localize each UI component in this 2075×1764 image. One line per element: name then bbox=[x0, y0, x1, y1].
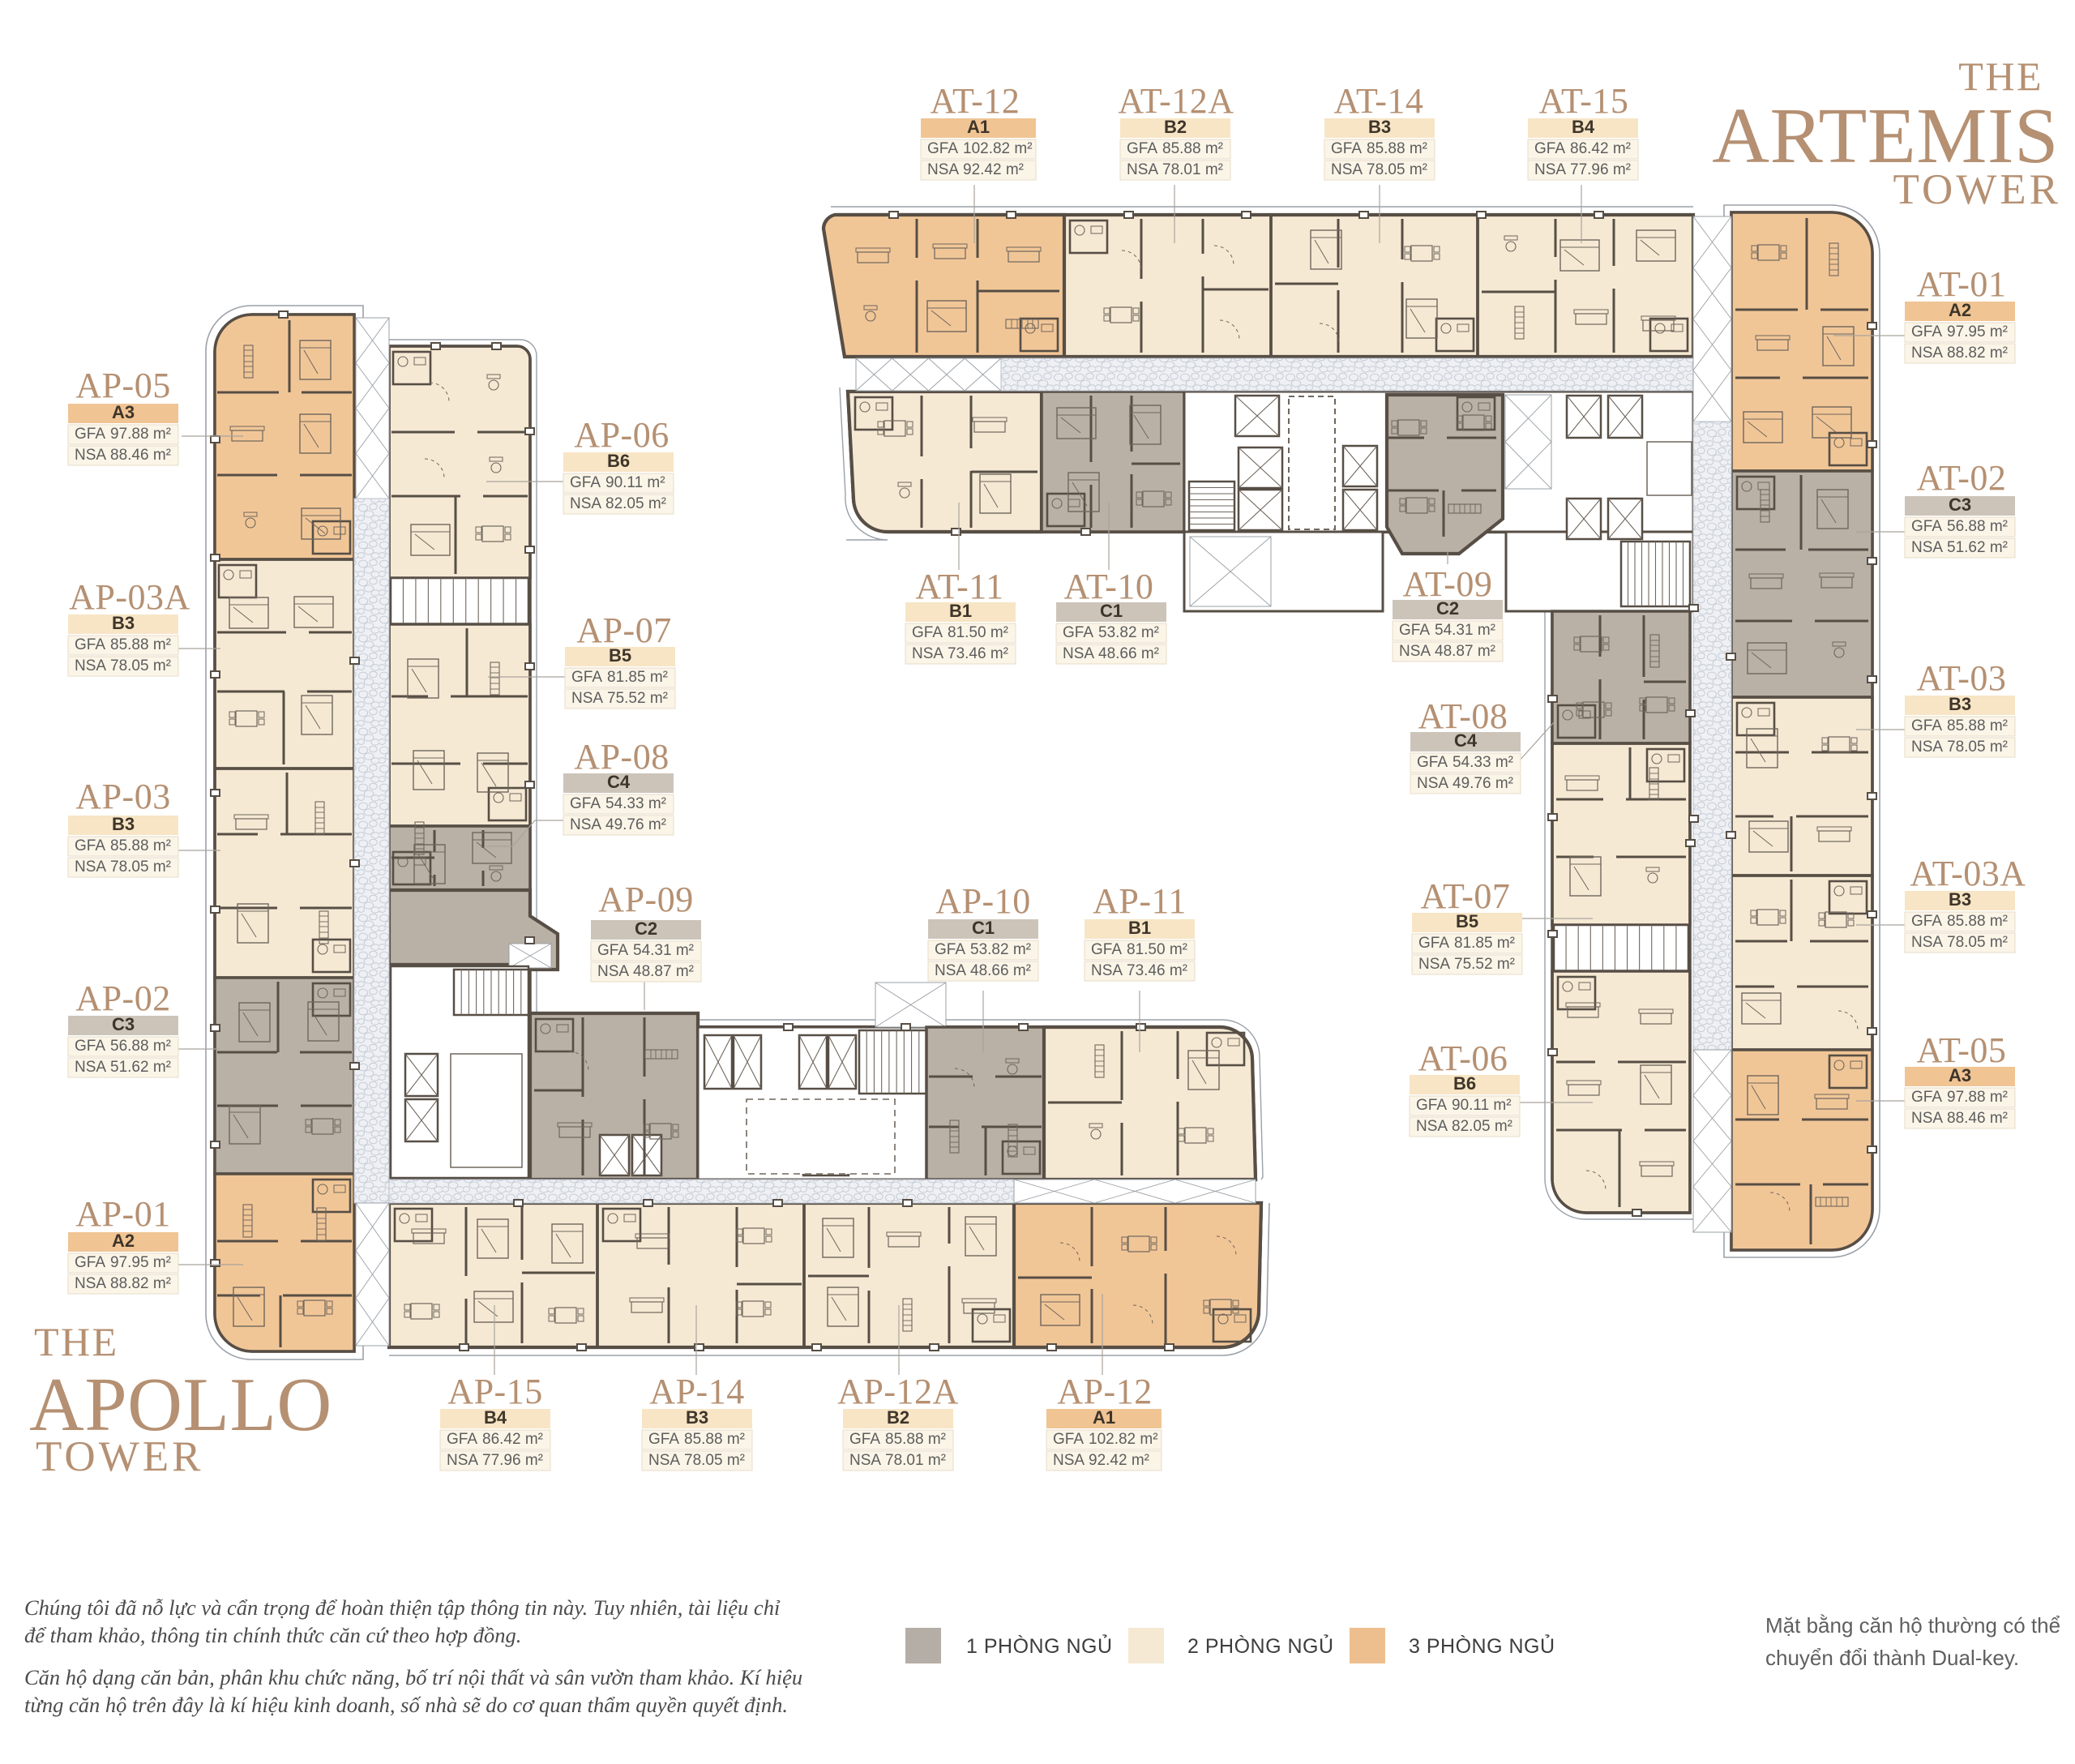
svg-text:GFA: GFA bbox=[570, 474, 601, 491]
svg-text:AT-14: AT-14 bbox=[1334, 81, 1424, 121]
svg-text:AT-15: AT-15 bbox=[1539, 81, 1629, 121]
svg-text:NSA: NSA bbox=[1534, 161, 1566, 178]
svg-text:75.52 m²: 75.52 m² bbox=[1454, 956, 1515, 973]
svg-text:NSA: NSA bbox=[1416, 1118, 1448, 1135]
svg-text:B3: B3 bbox=[1368, 117, 1391, 137]
svg-text:GFA: GFA bbox=[1534, 140, 1565, 157]
svg-text:85.88 m²: 85.88 m² bbox=[885, 1431, 946, 1448]
svg-text:54.31 m²: 54.31 m² bbox=[1435, 622, 1495, 639]
svg-text:GFA: GFA bbox=[447, 1431, 477, 1448]
svg-text:A2: A2 bbox=[112, 1231, 135, 1251]
svg-text:B3: B3 bbox=[112, 613, 135, 633]
svg-text:90.11 m²: 90.11 m² bbox=[605, 474, 665, 491]
svg-text:GFA: GFA bbox=[1417, 754, 1448, 771]
svg-text:B3: B3 bbox=[686, 1407, 708, 1428]
svg-text:GFA: GFA bbox=[1127, 140, 1157, 157]
svg-text:C4: C4 bbox=[607, 772, 631, 792]
svg-text:88.82 m²: 88.82 m² bbox=[1947, 345, 2008, 362]
svg-text:B6: B6 bbox=[607, 451, 630, 471]
svg-text:86.42 m²: 86.42 m² bbox=[1570, 140, 1631, 157]
svg-text:A1: A1 bbox=[1093, 1407, 1115, 1428]
svg-text:NSA: NSA bbox=[1911, 539, 1943, 556]
svg-text:NSA: NSA bbox=[75, 1275, 106, 1292]
svg-text:97.88 m²: 97.88 m² bbox=[110, 426, 171, 443]
svg-text:AT-01: AT-01 bbox=[1917, 264, 2007, 304]
svg-text:AP-08: AP-08 bbox=[574, 737, 669, 777]
svg-text:AP-06: AP-06 bbox=[574, 415, 669, 455]
svg-text:GFA: GFA bbox=[75, 636, 105, 653]
svg-text:88.82 m²: 88.82 m² bbox=[110, 1275, 171, 1292]
svg-text:GFA: GFA bbox=[1063, 624, 1093, 641]
svg-text:AP-12: AP-12 bbox=[1057, 1372, 1152, 1411]
svg-text:AP-15: AP-15 bbox=[447, 1372, 542, 1411]
svg-text:NSA: NSA bbox=[1418, 956, 1450, 973]
svg-text:GFA: GFA bbox=[597, 942, 628, 959]
svg-text:B4: B4 bbox=[484, 1407, 507, 1428]
svg-text:B3: B3 bbox=[1949, 889, 1971, 910]
svg-text:GFA: GFA bbox=[1053, 1431, 1084, 1448]
svg-text:từng căn hộ trên đây là kí hiệ: từng căn hộ trên đây là kí hiệu kinh doa… bbox=[24, 1693, 788, 1717]
svg-text:AP-12A: AP-12A bbox=[837, 1372, 959, 1411]
svg-text:81.50 m²: 81.50 m² bbox=[948, 624, 1008, 641]
svg-text:Chúng tôi đã nỗ lực và cẩn trọ: Chúng tôi đã nỗ lực và cẩn trọng để hoàn… bbox=[24, 1595, 781, 1620]
svg-text:3 PHÒNG NGỦ: 3 PHÒNG NGỦ bbox=[1409, 1633, 1555, 1658]
svg-text:AP-03: AP-03 bbox=[75, 777, 170, 816]
svg-text:AT-05: AT-05 bbox=[1917, 1030, 2007, 1070]
svg-text:NSA: NSA bbox=[597, 963, 629, 980]
svg-text:B6: B6 bbox=[1453, 1073, 1476, 1094]
svg-text:48.87 m²: 48.87 m² bbox=[1435, 643, 1495, 660]
svg-text:NSA: NSA bbox=[1911, 345, 1943, 362]
svg-text:NSA: NSA bbox=[1911, 739, 1943, 756]
svg-text:B1: B1 bbox=[1128, 918, 1151, 938]
svg-text:C3: C3 bbox=[112, 1014, 135, 1034]
svg-text:AT-12A: AT-12A bbox=[1118, 81, 1234, 121]
svg-text:A2: A2 bbox=[1949, 300, 1971, 320]
svg-text:78.05 m²: 78.05 m² bbox=[1947, 739, 2008, 756]
svg-text:NSA: NSA bbox=[1331, 161, 1363, 178]
svg-text:NSA: NSA bbox=[75, 1059, 106, 1076]
svg-text:GFA: GFA bbox=[1091, 941, 1122, 958]
svg-text:C4: C4 bbox=[1454, 730, 1478, 751]
svg-text:TOWER: TOWER bbox=[1893, 166, 2061, 213]
svg-text:85.88 m²: 85.88 m² bbox=[110, 636, 171, 653]
svg-text:A3: A3 bbox=[1949, 1065, 1971, 1085]
svg-text:81.50 m²: 81.50 m² bbox=[1127, 941, 1187, 958]
svg-text:NSA: NSA bbox=[935, 962, 966, 979]
svg-text:B1: B1 bbox=[949, 601, 972, 621]
svg-text:GFA: GFA bbox=[648, 1431, 679, 1448]
svg-text:B2: B2 bbox=[1164, 117, 1187, 137]
svg-text:B5: B5 bbox=[609, 645, 631, 666]
svg-text:AP-02: AP-02 bbox=[75, 978, 170, 1018]
svg-text:AP-03A: AP-03A bbox=[69, 577, 190, 617]
svg-text:85.88 m²: 85.88 m² bbox=[1947, 913, 2008, 930]
svg-text:THE: THE bbox=[34, 1319, 119, 1364]
svg-text:AT-12: AT-12 bbox=[931, 81, 1020, 121]
svg-text:Căn hộ dạng căn bản, phân khu: Căn hộ dạng căn bản, phân khu chức năng,… bbox=[24, 1665, 802, 1689]
svg-text:AT-03A: AT-03A bbox=[1910, 854, 2026, 893]
svg-text:NSA: NSA bbox=[1911, 934, 1943, 951]
svg-text:GFA: GFA bbox=[1418, 935, 1449, 952]
svg-text:TOWER: TOWER bbox=[36, 1433, 203, 1480]
svg-text:81.85 m²: 81.85 m² bbox=[1454, 935, 1515, 952]
svg-text:AT-07: AT-07 bbox=[1421, 876, 1511, 916]
svg-text:97.88 m²: 97.88 m² bbox=[1947, 1089, 2008, 1106]
svg-text:51.62 m²: 51.62 m² bbox=[1947, 539, 2008, 556]
svg-text:B3: B3 bbox=[112, 814, 135, 834]
svg-text:GFA: GFA bbox=[75, 1254, 105, 1271]
svg-text:53.82 m²: 53.82 m² bbox=[1098, 624, 1159, 641]
svg-text:78.01 m²: 78.01 m² bbox=[885, 1452, 946, 1469]
svg-text:NSA: NSA bbox=[1127, 161, 1158, 178]
svg-text:NSA: NSA bbox=[1399, 643, 1431, 660]
svg-text:88.46 m²: 88.46 m² bbox=[110, 447, 171, 464]
svg-text:C1: C1 bbox=[972, 918, 995, 938]
svg-text:78.01 m²: 78.01 m² bbox=[1162, 161, 1223, 178]
svg-text:54.33 m²: 54.33 m² bbox=[1452, 754, 1513, 771]
svg-text:NSA: NSA bbox=[570, 816, 601, 833]
svg-text:2 PHÒNG NGỦ: 2 PHÒNG NGỦ bbox=[1187, 1633, 1334, 1658]
svg-text:73.46 m²: 73.46 m² bbox=[1127, 962, 1187, 979]
svg-text:GFA: GFA bbox=[1399, 622, 1430, 639]
svg-text:82.05 m²: 82.05 m² bbox=[605, 495, 666, 512]
svg-text:AP-05: AP-05 bbox=[75, 366, 170, 405]
svg-text:78.05 m²: 78.05 m² bbox=[1947, 934, 2008, 951]
svg-text:A1: A1 bbox=[967, 117, 990, 137]
svg-text:AP-01: AP-01 bbox=[75, 1194, 170, 1234]
svg-text:GFA: GFA bbox=[1911, 323, 1942, 340]
svg-text:102.82 m²: 102.82 m² bbox=[1089, 1431, 1158, 1448]
svg-text:NSA: NSA bbox=[570, 495, 601, 512]
svg-text:B4: B4 bbox=[1572, 117, 1595, 137]
svg-text:77.96 m²: 77.96 m² bbox=[1570, 161, 1631, 178]
svg-text:B5: B5 bbox=[1456, 911, 1478, 931]
svg-text:GFA: GFA bbox=[912, 624, 943, 641]
svg-text:GFA: GFA bbox=[570, 795, 601, 812]
svg-text:để tham khảo, thông tin chính: để tham khảo, thông tin chính thức căn c… bbox=[24, 1623, 521, 1647]
svg-text:82.05 m²: 82.05 m² bbox=[1452, 1118, 1512, 1135]
svg-text:92.42 m²: 92.42 m² bbox=[963, 161, 1024, 178]
svg-text:56.88 m²: 56.88 m² bbox=[1947, 518, 2008, 535]
svg-text:GFA: GFA bbox=[571, 669, 602, 686]
svg-text:97.95 m²: 97.95 m² bbox=[1947, 323, 2008, 340]
svg-text:NSA: NSA bbox=[75, 447, 106, 464]
svg-text:NSA: NSA bbox=[1053, 1452, 1085, 1469]
svg-text:NSA: NSA bbox=[447, 1452, 478, 1469]
svg-text:85.88 m²: 85.88 m² bbox=[110, 837, 171, 854]
svg-text:102.82 m²: 102.82 m² bbox=[963, 140, 1033, 157]
svg-text:51.62 m²: 51.62 m² bbox=[110, 1059, 171, 1076]
svg-text:GFA: GFA bbox=[1416, 1097, 1447, 1114]
svg-text:NSA: NSA bbox=[1911, 1110, 1943, 1127]
svg-text:C1: C1 bbox=[1100, 601, 1123, 621]
svg-text:48.87 m²: 48.87 m² bbox=[633, 963, 694, 980]
svg-text:NSA: NSA bbox=[75, 858, 106, 876]
svg-text:86.42 m²: 86.42 m² bbox=[482, 1431, 543, 1448]
svg-text:AP-11: AP-11 bbox=[1093, 881, 1187, 921]
svg-text:GFA: GFA bbox=[1911, 1089, 1942, 1106]
svg-text:GFA: GFA bbox=[75, 837, 105, 854]
svg-text:1 PHÒNG NGỦ: 1 PHÒNG NGỦ bbox=[966, 1633, 1113, 1658]
svg-text:GFA: GFA bbox=[1331, 140, 1362, 157]
svg-text:88.46 m²: 88.46 m² bbox=[1947, 1110, 2008, 1127]
svg-text:GFA: GFA bbox=[935, 941, 965, 958]
svg-text:85.88 m²: 85.88 m² bbox=[1947, 717, 2008, 734]
svg-text:NSA: NSA bbox=[648, 1452, 680, 1469]
svg-text:85.88 m²: 85.88 m² bbox=[684, 1431, 745, 1448]
svg-text:78.05 m²: 78.05 m² bbox=[684, 1452, 745, 1469]
svg-text:NSA: NSA bbox=[927, 161, 959, 178]
svg-text:GFA: GFA bbox=[75, 1038, 105, 1055]
svg-text:97.95 m²: 97.95 m² bbox=[110, 1254, 171, 1271]
svg-text:92.42 m²: 92.42 m² bbox=[1089, 1452, 1149, 1469]
svg-text:Mặt bằng căn hộ thường có thể: Mặt bằng căn hộ thường có thể bbox=[1765, 1613, 2060, 1638]
svg-text:53.82 m²: 53.82 m² bbox=[970, 941, 1031, 958]
svg-text:90.11 m²: 90.11 m² bbox=[1452, 1097, 1512, 1114]
svg-text:AT-03: AT-03 bbox=[1917, 658, 2007, 698]
svg-text:AP-09: AP-09 bbox=[598, 880, 693, 919]
svg-text:NSA: NSA bbox=[1091, 962, 1123, 979]
svg-text:NSA: NSA bbox=[571, 690, 603, 707]
svg-text:85.88 m²: 85.88 m² bbox=[1367, 140, 1427, 157]
svg-text:NSA: NSA bbox=[1417, 775, 1448, 792]
svg-text:GFA: GFA bbox=[1911, 717, 1942, 734]
svg-text:75.52 m²: 75.52 m² bbox=[607, 690, 668, 707]
svg-text:NSA: NSA bbox=[912, 645, 943, 662]
svg-text:GFA: GFA bbox=[1911, 913, 1942, 930]
svg-text:78.05 m²: 78.05 m² bbox=[1367, 161, 1427, 178]
svg-text:B2: B2 bbox=[887, 1407, 909, 1428]
svg-text:NSA: NSA bbox=[1063, 645, 1094, 662]
svg-text:AP-07: AP-07 bbox=[576, 610, 671, 650]
svg-text:56.88 m²: 56.88 m² bbox=[110, 1038, 171, 1055]
svg-text:85.88 m²: 85.88 m² bbox=[1162, 140, 1223, 157]
svg-text:AT-02: AT-02 bbox=[1917, 458, 2007, 498]
svg-text:81.85 m²: 81.85 m² bbox=[607, 669, 668, 686]
svg-text:73.46 m²: 73.46 m² bbox=[948, 645, 1008, 662]
svg-text:48.66 m²: 48.66 m² bbox=[1098, 645, 1159, 662]
svg-text:78.05 m²: 78.05 m² bbox=[110, 858, 171, 876]
svg-text:48.66 m²: 48.66 m² bbox=[970, 962, 1031, 979]
svg-text:C2: C2 bbox=[1436, 598, 1459, 619]
svg-text:chuyển đổi thành Dual-key.: chuyển đổi thành Dual-key. bbox=[1765, 1646, 2019, 1670]
svg-text:C2: C2 bbox=[635, 918, 657, 939]
svg-text:A3: A3 bbox=[112, 402, 135, 422]
svg-text:NSA: NSA bbox=[849, 1452, 881, 1469]
svg-text:78.05 m²: 78.05 m² bbox=[110, 657, 171, 674]
svg-text:49.76 m²: 49.76 m² bbox=[1452, 775, 1513, 792]
svg-text:AP-14: AP-14 bbox=[649, 1372, 744, 1411]
svg-text:54.31 m²: 54.31 m² bbox=[633, 942, 694, 959]
svg-text:49.76 m²: 49.76 m² bbox=[605, 816, 666, 833]
svg-text:GFA: GFA bbox=[849, 1431, 880, 1448]
svg-text:77.96 m²: 77.96 m² bbox=[482, 1452, 543, 1469]
svg-text:NSA: NSA bbox=[75, 657, 106, 674]
svg-text:B3: B3 bbox=[1949, 694, 1971, 714]
svg-text:AT-06: AT-06 bbox=[1418, 1038, 1508, 1078]
svg-text:GFA: GFA bbox=[75, 426, 105, 443]
svg-text:C3: C3 bbox=[1949, 495, 1971, 515]
svg-text:GFA: GFA bbox=[927, 140, 958, 157]
svg-text:54.33 m²: 54.33 m² bbox=[605, 795, 666, 812]
svg-text:AP-10: AP-10 bbox=[935, 881, 1030, 921]
svg-text:GFA: GFA bbox=[1911, 518, 1942, 535]
